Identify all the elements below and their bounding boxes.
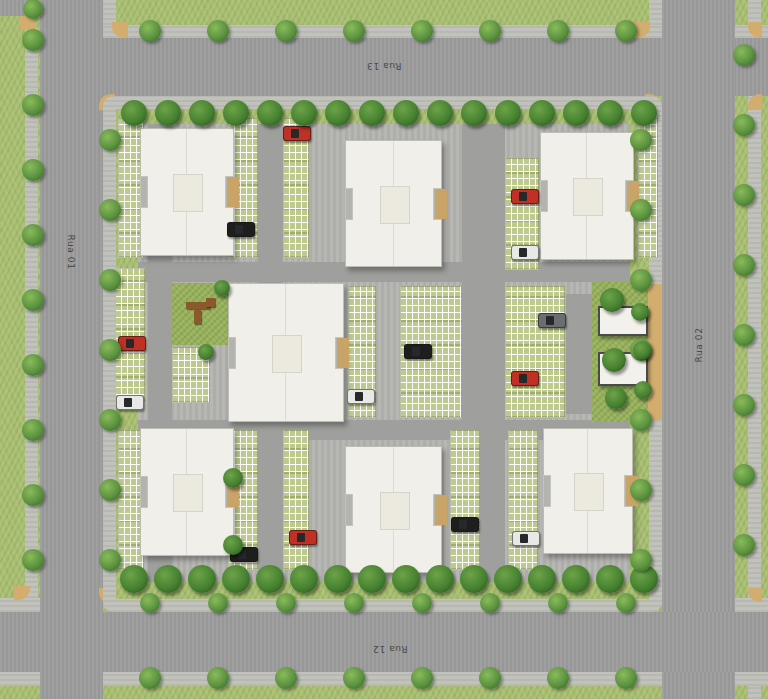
tree — [257, 100, 283, 126]
car-glass — [546, 316, 554, 325]
building-bottom-center-ent — [435, 495, 447, 525]
tree — [562, 565, 590, 593]
parking-lot — [508, 430, 538, 570]
building-bottom-right — [543, 428, 633, 554]
tree — [256, 565, 284, 593]
tree — [189, 100, 215, 126]
tree — [600, 288, 624, 312]
building-center-ent — [337, 338, 349, 368]
tree — [616, 593, 636, 613]
car — [283, 126, 311, 141]
tree — [99, 339, 121, 361]
sidewalk-rua12-south — [0, 672, 768, 686]
tree — [22, 289, 44, 311]
car — [451, 517, 479, 532]
playground-equipment — [194, 310, 201, 324]
tree — [630, 129, 652, 151]
tree — [208, 593, 228, 613]
car-glass — [520, 534, 528, 543]
tree — [207, 667, 229, 689]
tree — [633, 341, 651, 359]
tree — [630, 549, 652, 571]
tree — [733, 184, 755, 206]
entrance-lane-link — [566, 294, 592, 414]
tree — [480, 593, 500, 613]
tree — [460, 565, 488, 593]
tree — [605, 387, 627, 409]
tree — [359, 100, 385, 126]
playground-equipment — [206, 298, 215, 307]
tree — [631, 303, 649, 321]
tree — [223, 468, 243, 488]
car — [116, 395, 144, 410]
tree — [393, 100, 419, 126]
tree — [358, 565, 386, 593]
tree — [22, 159, 44, 181]
building-bottom-left-notch — [140, 476, 148, 508]
tree — [615, 20, 637, 42]
tree — [479, 20, 501, 42]
building-center — [228, 283, 344, 422]
car-glass — [412, 347, 420, 356]
road-rua-13 — [40, 38, 768, 96]
car-glass — [291, 129, 299, 138]
tree — [324, 565, 352, 593]
tree — [343, 20, 365, 42]
tree — [188, 565, 216, 593]
sidewalk-rua12-north-w — [0, 598, 40, 612]
tree — [602, 348, 626, 372]
tree — [427, 100, 453, 126]
tree — [291, 100, 317, 126]
parking-lot — [450, 430, 480, 570]
tree — [392, 565, 420, 593]
tree — [733, 44, 755, 66]
tree — [198, 344, 214, 360]
tree — [22, 549, 44, 571]
parking-lot — [115, 268, 145, 402]
tree — [343, 667, 365, 689]
building-top-right-core — [573, 178, 603, 216]
street-label-rua-13: Rua 13 — [367, 61, 402, 71]
tree — [528, 565, 556, 593]
tree — [733, 324, 755, 346]
tree — [529, 100, 555, 126]
tree — [22, 94, 44, 116]
tree — [461, 100, 487, 126]
street-label-rua-01: Rua 01 — [66, 235, 76, 270]
tree — [139, 667, 161, 689]
car — [347, 389, 375, 404]
tree — [121, 100, 147, 126]
tree — [411, 667, 433, 689]
tree — [22, 29, 44, 51]
tree — [223, 100, 249, 126]
building-bottom-right-core — [574, 473, 604, 511]
tree — [154, 565, 182, 593]
car — [511, 189, 539, 204]
tree — [275, 20, 297, 42]
tree — [275, 667, 297, 689]
tree — [615, 667, 637, 689]
tree — [223, 535, 243, 555]
tree — [344, 593, 364, 613]
car-glass — [355, 392, 363, 401]
building-bottom-center-notch — [345, 494, 353, 526]
building-bottom-left-core — [173, 474, 203, 512]
tree — [411, 20, 433, 42]
building-center-core — [272, 335, 302, 373]
tree — [99, 549, 121, 571]
tree — [99, 479, 121, 501]
tree — [23, 0, 43, 19]
tree — [426, 565, 454, 593]
tree — [634, 381, 652, 399]
building-bottom-center-core — [380, 492, 410, 530]
tree — [214, 280, 230, 296]
road-rua-12 — [0, 612, 768, 672]
car-glass — [124, 398, 132, 407]
site-plan: Rua 13Rua 12Rua 01Rua 02 — [0, 0, 768, 699]
parking-lot — [505, 286, 565, 418]
tree — [630, 479, 652, 501]
tree — [733, 394, 755, 416]
tree — [596, 565, 624, 593]
car — [512, 531, 540, 546]
building-bottom-center — [345, 446, 442, 573]
building-center-notch — [228, 337, 236, 369]
car — [289, 530, 317, 545]
tree — [495, 100, 521, 126]
building-top-left-notch — [140, 176, 148, 208]
tree — [563, 100, 589, 126]
car — [227, 222, 255, 237]
car-glass — [519, 248, 527, 257]
street-label-rua-02: Rua 02 — [694, 328, 704, 363]
tree — [99, 199, 121, 221]
car — [538, 313, 566, 328]
building-top-center-notch — [345, 188, 353, 220]
car — [118, 336, 146, 351]
car — [404, 344, 432, 359]
building-top-left — [140, 128, 234, 256]
tree — [99, 409, 121, 431]
building-bottom-left — [140, 428, 234, 556]
tree — [630, 269, 652, 291]
tree — [22, 484, 44, 506]
tree — [733, 114, 755, 136]
building-bottom-right-notch — [543, 475, 551, 507]
tree — [290, 565, 318, 593]
building-top-center-ent — [435, 189, 447, 219]
tree — [630, 409, 652, 431]
road-rua-01 — [40, 0, 103, 699]
sidewalk-rua02-top — [649, 0, 662, 25]
car — [511, 245, 539, 260]
building-top-left-ent — [227, 177, 239, 207]
tree — [22, 354, 44, 376]
tree — [22, 224, 44, 246]
building-top-right-notch — [540, 180, 548, 212]
tree — [631, 100, 657, 126]
tree — [494, 565, 522, 593]
tree — [733, 464, 755, 486]
tree — [207, 20, 229, 42]
tree — [276, 593, 296, 613]
tree — [412, 593, 432, 613]
tree — [547, 667, 569, 689]
tree — [548, 593, 568, 613]
tree — [597, 100, 623, 126]
tree — [222, 565, 250, 593]
parking-lot — [283, 430, 309, 570]
building-top-right — [540, 132, 634, 260]
car-glass — [235, 225, 243, 234]
car-glass — [519, 374, 527, 383]
tree — [155, 100, 181, 126]
car — [511, 371, 539, 386]
tree — [733, 254, 755, 276]
car-glass — [297, 533, 305, 542]
tree — [325, 100, 351, 126]
sidewalk-rua12-north-e — [735, 598, 768, 612]
tree — [630, 199, 652, 221]
tree — [140, 593, 160, 613]
building-top-left-core — [173, 174, 203, 212]
tree — [99, 269, 121, 291]
tree — [547, 20, 569, 42]
car-glass — [459, 520, 467, 529]
tree — [479, 667, 501, 689]
street-label-rua-12: Rua 12 — [373, 644, 408, 654]
car-glass — [126, 339, 134, 348]
building-top-center — [345, 140, 442, 267]
car-glass — [519, 192, 527, 201]
tree — [139, 20, 161, 42]
tree — [99, 129, 121, 151]
tree — [733, 534, 755, 556]
building-top-center-core — [380, 186, 410, 224]
tree — [22, 419, 44, 441]
tree — [120, 565, 148, 593]
